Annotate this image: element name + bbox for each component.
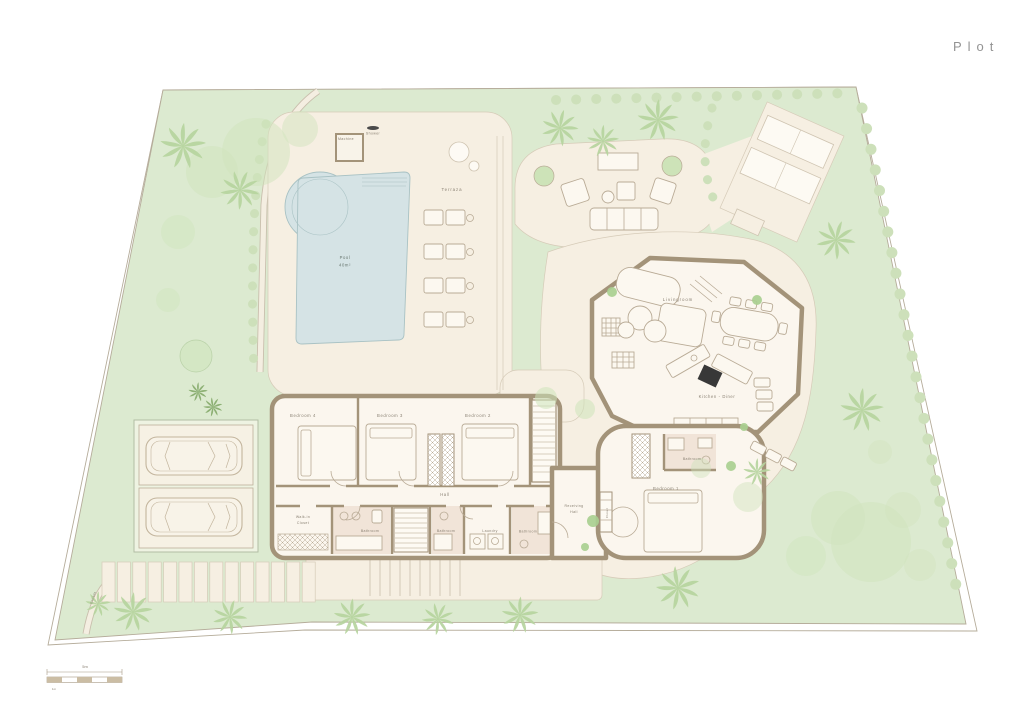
bed-bedroom1 (644, 490, 702, 552)
side-table (617, 182, 635, 200)
shower-icon (367, 126, 379, 130)
bed-bedroom4 (298, 426, 356, 480)
scale-dim-line (47, 669, 122, 675)
pool (296, 172, 410, 344)
bed-bedroom2 (462, 424, 518, 480)
wardrobe-hatch (442, 434, 454, 486)
closet-label: Closet (605, 508, 609, 518)
planter (662, 156, 682, 176)
kitchen-label: Kitchen - Diner (699, 394, 736, 399)
outdoor-table (598, 153, 638, 170)
carport (134, 420, 258, 552)
planter (534, 166, 554, 186)
page-title: Plot (953, 39, 999, 54)
car (146, 498, 242, 536)
laundry-label: Laundry (482, 529, 497, 533)
scale-bar: 5m 1m (47, 664, 122, 691)
scale-sub-label: 1m (52, 687, 57, 691)
bedroom-wing (272, 396, 560, 558)
bedroom1-label: Bedroom 1 (653, 486, 679, 491)
walkin-shelving (278, 534, 328, 550)
receiving-label-2: Hall (570, 510, 578, 514)
scale-main-label: 5m (82, 664, 88, 669)
machine-label: Machine (338, 137, 354, 141)
shower-label: Shower (366, 132, 381, 136)
bedroom4-label: Bedroom 4 (290, 413, 316, 418)
bathroom-b-label: Bathroom (437, 529, 455, 533)
plot-plan-page: Machine Shower Terraza Pool 40m² Livingr… (0, 0, 1024, 724)
ensuite-label: Bathroom (683, 457, 701, 461)
receiving-label-1: Receiving (565, 504, 584, 508)
south-terrace (306, 554, 602, 600)
car (146, 437, 242, 475)
pool-label: Pool (340, 255, 351, 260)
scale-seg (77, 677, 92, 683)
living-wing (592, 258, 802, 432)
bedroom3-label: Bedroom 3 (377, 413, 403, 418)
bed-bedroom3 (366, 424, 416, 480)
scale-seg (47, 677, 62, 683)
round-table (602, 191, 614, 203)
service-stairs (394, 508, 428, 552)
walkin-label-1: Walk-in (296, 515, 310, 519)
kitchen-bench (754, 378, 773, 411)
scale-seg (107, 677, 122, 683)
bedroom1-wardrobe-hatch (632, 434, 650, 478)
wardrobe-hatch (428, 434, 440, 486)
bedroom2-label: Bedroom 2 (465, 413, 491, 418)
bathroom-c-label: Bathroom (519, 530, 537, 534)
pool-area-label: 40m² (339, 263, 351, 268)
hall-label: Hall (440, 492, 450, 497)
terrace-label: Terraza (442, 187, 463, 192)
livingroom-label: Livingroom (663, 297, 693, 302)
walkin-label-2: Closet (297, 521, 309, 525)
deck-planter-large (449, 142, 469, 162)
deck-planter-small (469, 161, 479, 171)
bathroom-a-label: Bathroom (361, 529, 379, 533)
site-plan-drawing: Machine Shower Terraza Pool 40m² Livingr… (0, 0, 1024, 724)
